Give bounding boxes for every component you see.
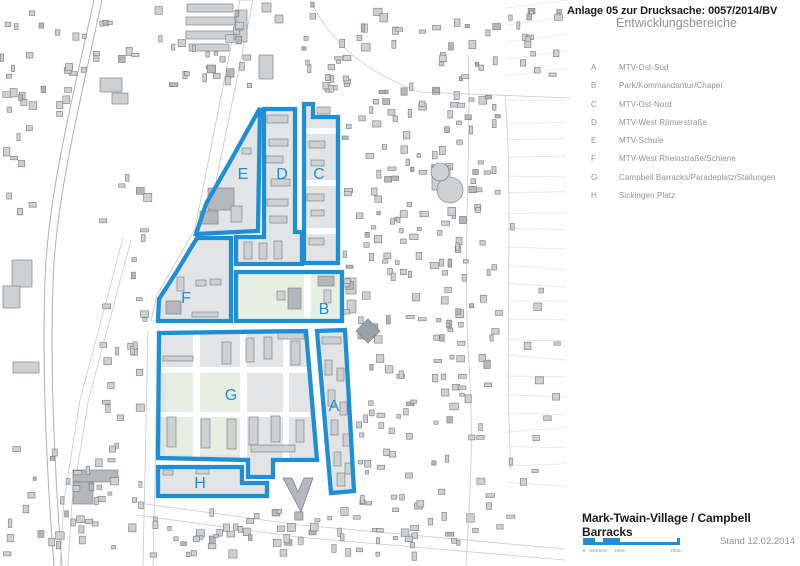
building — [118, 55, 125, 62]
building — [417, 227, 421, 230]
building — [115, 348, 118, 355]
building — [266, 156, 283, 163]
building — [325, 360, 332, 375]
large-building — [431, 163, 449, 181]
street — [159, 412, 310, 417]
building — [469, 126, 472, 134]
building — [311, 210, 324, 216]
building — [63, 96, 70, 103]
building — [366, 153, 374, 158]
building — [454, 19, 460, 26]
building — [462, 274, 466, 281]
building — [535, 377, 543, 384]
building — [201, 419, 210, 448]
building — [465, 115, 471, 120]
building — [110, 478, 118, 485]
building — [459, 216, 466, 223]
building — [356, 422, 361, 428]
building — [192, 45, 195, 51]
building — [361, 495, 365, 503]
building — [100, 21, 103, 26]
building — [267, 115, 288, 123]
building — [81, 67, 86, 72]
building — [49, 538, 55, 546]
building — [181, 542, 187, 546]
street — [159, 367, 310, 373]
building — [486, 494, 494, 498]
building — [6, 74, 12, 78]
legend-key: C — [591, 100, 619, 109]
zone-D-label: D — [276, 166, 288, 183]
building — [462, 75, 469, 79]
building — [335, 57, 343, 60]
building — [419, 101, 425, 106]
building — [280, 550, 287, 557]
building — [471, 179, 476, 184]
building — [153, 521, 158, 528]
building — [430, 262, 438, 268]
building — [184, 72, 189, 76]
building — [322, 337, 341, 344]
building — [306, 60, 309, 65]
building — [405, 473, 412, 478]
building — [406, 159, 410, 166]
building — [440, 55, 447, 62]
building — [406, 315, 414, 318]
building — [391, 495, 396, 499]
building — [407, 202, 411, 207]
building — [497, 525, 503, 530]
building — [284, 534, 290, 542]
zone-F-label: F — [181, 290, 191, 307]
building — [108, 492, 112, 495]
building — [477, 436, 485, 440]
building — [125, 174, 129, 181]
building — [60, 497, 64, 504]
building — [317, 107, 330, 114]
building — [73, 486, 80, 492]
legend-row: DMTV-West Römerstraße — [591, 118, 776, 136]
legend-row: FMTV-West Rheinstraße/Schiene — [591, 154, 776, 172]
building — [441, 374, 446, 379]
building — [244, 242, 252, 259]
building — [401, 88, 407, 95]
scale-label: 200m — [670, 548, 681, 553]
building — [166, 301, 181, 314]
building — [206, 52, 210, 57]
building — [553, 50, 559, 57]
building — [393, 116, 397, 121]
building — [307, 194, 324, 201]
building — [136, 369, 143, 375]
building — [364, 415, 368, 423]
building — [12, 260, 32, 287]
building — [520, 60, 525, 66]
building — [23, 505, 29, 513]
legend-label: Sickingen Platz — [619, 191, 675, 200]
building — [269, 139, 288, 146]
building — [26, 126, 32, 131]
legend-key: G — [591, 173, 619, 182]
building — [374, 235, 381, 243]
building — [287, 523, 295, 531]
building — [439, 146, 445, 154]
building — [377, 413, 385, 417]
legend-row: EMTV-Schule — [591, 136, 776, 154]
building — [41, 86, 46, 92]
building — [411, 400, 417, 403]
building — [65, 87, 72, 92]
building — [465, 24, 469, 27]
map-canvas: ABCDEFGH — [0, 0, 570, 566]
building — [524, 342, 531, 349]
building — [448, 259, 452, 267]
building — [445, 127, 450, 133]
building — [554, 15, 562, 21]
building — [3, 92, 11, 98]
building — [406, 433, 412, 439]
building — [382, 260, 387, 263]
building — [359, 317, 364, 324]
building — [369, 410, 374, 416]
building — [65, 511, 69, 517]
building — [14, 24, 18, 30]
building — [480, 295, 486, 302]
building — [39, 23, 44, 28]
building — [29, 202, 36, 207]
building — [310, 14, 316, 19]
building — [357, 213, 363, 219]
building — [448, 328, 453, 332]
building — [389, 428, 394, 434]
building — [262, 3, 271, 12]
building — [5, 22, 11, 26]
zone-H-label: H — [194, 475, 206, 492]
building — [493, 57, 497, 65]
building — [440, 259, 444, 266]
building — [440, 335, 445, 342]
building — [277, 526, 284, 532]
building — [187, 4, 233, 12]
building — [331, 75, 334, 82]
building — [552, 394, 559, 401]
building — [193, 536, 199, 541]
building — [354, 516, 361, 520]
building — [8, 519, 12, 527]
building — [3, 286, 20, 308]
building — [213, 73, 220, 78]
building — [264, 337, 272, 359]
scale-bar-segment — [603, 538, 620, 545]
building — [163, 356, 193, 361]
building — [3, 552, 11, 556]
building — [458, 103, 465, 107]
building — [359, 116, 365, 121]
building — [391, 273, 395, 280]
building — [159, 36, 162, 42]
building — [438, 230, 442, 235]
building — [77, 516, 85, 523]
building — [291, 341, 300, 365]
building — [417, 500, 424, 507]
building — [17, 134, 20, 141]
building — [385, 366, 393, 373]
building — [412, 552, 416, 560]
building — [410, 234, 418, 239]
building — [139, 502, 144, 509]
building — [459, 322, 464, 327]
building — [19, 95, 23, 101]
building — [238, 526, 242, 532]
building — [403, 132, 410, 139]
building — [304, 36, 308, 40]
building — [361, 24, 364, 32]
building — [456, 121, 461, 125]
building — [446, 324, 449, 327]
building — [56, 541, 60, 548]
building — [340, 534, 344, 541]
building — [486, 503, 491, 510]
building — [155, 7, 162, 15]
building — [71, 519, 75, 526]
building — [18, 161, 24, 167]
building — [117, 415, 123, 421]
building — [136, 187, 144, 194]
building — [328, 64, 335, 70]
building — [433, 25, 441, 30]
building — [112, 545, 116, 548]
building — [434, 421, 438, 424]
building — [259, 55, 273, 79]
building — [3, 148, 9, 156]
building — [437, 318, 441, 322]
building — [401, 239, 407, 243]
building — [196, 469, 209, 474]
building — [7, 193, 12, 199]
building — [457, 540, 460, 545]
building — [458, 386, 466, 389]
legend-key: H — [591, 191, 619, 200]
building — [298, 537, 303, 544]
building — [445, 287, 452, 292]
building — [271, 416, 280, 442]
building — [396, 27, 403, 31]
building — [136, 404, 144, 411]
building — [131, 272, 135, 279]
building — [531, 52, 536, 56]
building — [242, 148, 251, 154]
building — [492, 167, 496, 174]
building — [86, 519, 93, 524]
building — [0, 54, 3, 61]
scale-bar-segment — [677, 538, 680, 545]
building — [93, 51, 99, 55]
building — [214, 52, 218, 55]
building — [492, 120, 496, 128]
building — [340, 402, 347, 415]
legend-list: AMTV-Ost-SüdBPark/Kommandantur/ChapelCMT… — [591, 63, 776, 209]
building — [525, 41, 531, 47]
building — [186, 17, 235, 25]
scale-bar: 025m50m100m200m — [583, 538, 693, 556]
legend-row: CMTV-Ost-Nord — [591, 100, 776, 118]
building — [332, 545, 336, 553]
building — [388, 167, 396, 170]
building — [458, 341, 465, 345]
building — [507, 515, 515, 518]
building — [362, 44, 370, 51]
scale-label: 25m — [590, 548, 599, 553]
building — [463, 260, 468, 263]
legend-label: MTV-Schule — [619, 136, 664, 145]
legend-row: AMTV-Ost-Süd — [591, 63, 776, 81]
building — [7, 534, 13, 542]
building — [17, 208, 22, 215]
building — [517, 22, 520, 29]
building — [140, 229, 148, 232]
building — [342, 136, 348, 139]
building — [315, 519, 320, 522]
building — [235, 22, 243, 29]
building — [452, 538, 457, 543]
building — [326, 74, 330, 80]
building — [439, 489, 445, 494]
building — [196, 280, 206, 286]
building — [533, 435, 540, 440]
building — [370, 107, 373, 114]
building — [469, 304, 473, 308]
building — [469, 435, 475, 440]
building — [309, 238, 324, 245]
building — [375, 196, 382, 202]
building — [167, 417, 176, 447]
building — [92, 522, 98, 526]
plan-document: ABCDEFGH Anlage 05 zur Drucksache: 0057/… — [0, 0, 800, 566]
building — [473, 169, 479, 174]
building — [408, 271, 411, 277]
building — [247, 83, 251, 87]
building — [109, 446, 115, 452]
building — [208, 544, 216, 549]
legend-label: Park/Kommandantur/Chapel — [619, 81, 722, 90]
building — [434, 335, 440, 340]
building — [490, 335, 493, 341]
building — [527, 14, 532, 20]
building — [457, 140, 463, 144]
building — [296, 420, 304, 442]
building — [318, 276, 334, 286]
building — [410, 83, 413, 90]
building — [372, 188, 378, 195]
building — [530, 11, 534, 14]
building — [442, 512, 447, 520]
building — [97, 485, 102, 489]
building — [485, 383, 492, 387]
building — [136, 298, 142, 301]
zone-G-label: G — [225, 387, 237, 404]
building — [465, 395, 471, 403]
building — [454, 91, 459, 99]
building — [310, 523, 318, 531]
building — [311, 2, 314, 7]
building — [469, 40, 476, 48]
church-building — [283, 478, 313, 512]
building — [66, 64, 73, 71]
building — [343, 76, 349, 81]
building — [163, 470, 173, 475]
building — [227, 69, 235, 77]
building — [389, 452, 395, 458]
building — [358, 460, 363, 464]
legend-key: B — [591, 81, 619, 90]
building — [28, 492, 35, 498]
building — [473, 528, 478, 533]
building — [186, 552, 190, 557]
building — [73, 33, 79, 40]
building — [384, 253, 391, 259]
building — [104, 358, 112, 365]
building — [278, 333, 304, 339]
building — [377, 465, 385, 469]
building — [369, 253, 373, 261]
building — [492, 329, 499, 334]
legend-label: Campbell Barracks/Paradeplatz/Stallungen — [619, 173, 776, 182]
building — [57, 111, 63, 116]
building — [239, 62, 244, 70]
building — [53, 449, 58, 456]
building — [277, 509, 282, 513]
building — [448, 111, 453, 119]
building — [79, 536, 85, 544]
building — [112, 93, 128, 104]
building — [469, 98, 474, 101]
building — [11, 156, 18, 159]
building — [210, 279, 221, 285]
building — [434, 89, 440, 93]
building — [449, 43, 454, 50]
building — [486, 95, 492, 99]
building — [401, 146, 408, 153]
building — [203, 74, 207, 82]
building — [129, 524, 136, 532]
building — [100, 343, 107, 348]
building — [169, 83, 177, 87]
building — [144, 193, 152, 201]
building — [345, 84, 350, 87]
building — [509, 15, 512, 20]
building — [395, 261, 399, 265]
building — [412, 294, 419, 301]
building — [248, 535, 252, 541]
building — [346, 124, 351, 128]
building — [337, 368, 344, 381]
building — [510, 223, 514, 230]
building — [325, 89, 330, 92]
building — [225, 77, 230, 85]
building — [214, 534, 219, 537]
building — [373, 99, 378, 104]
building — [344, 192, 351, 196]
building — [337, 60, 341, 64]
building — [404, 409, 409, 415]
building — [11, 65, 14, 71]
building — [273, 539, 281, 546]
building — [132, 53, 139, 56]
building — [432, 152, 437, 159]
building — [249, 417, 258, 445]
building — [411, 525, 419, 530]
building — [26, 53, 33, 59]
